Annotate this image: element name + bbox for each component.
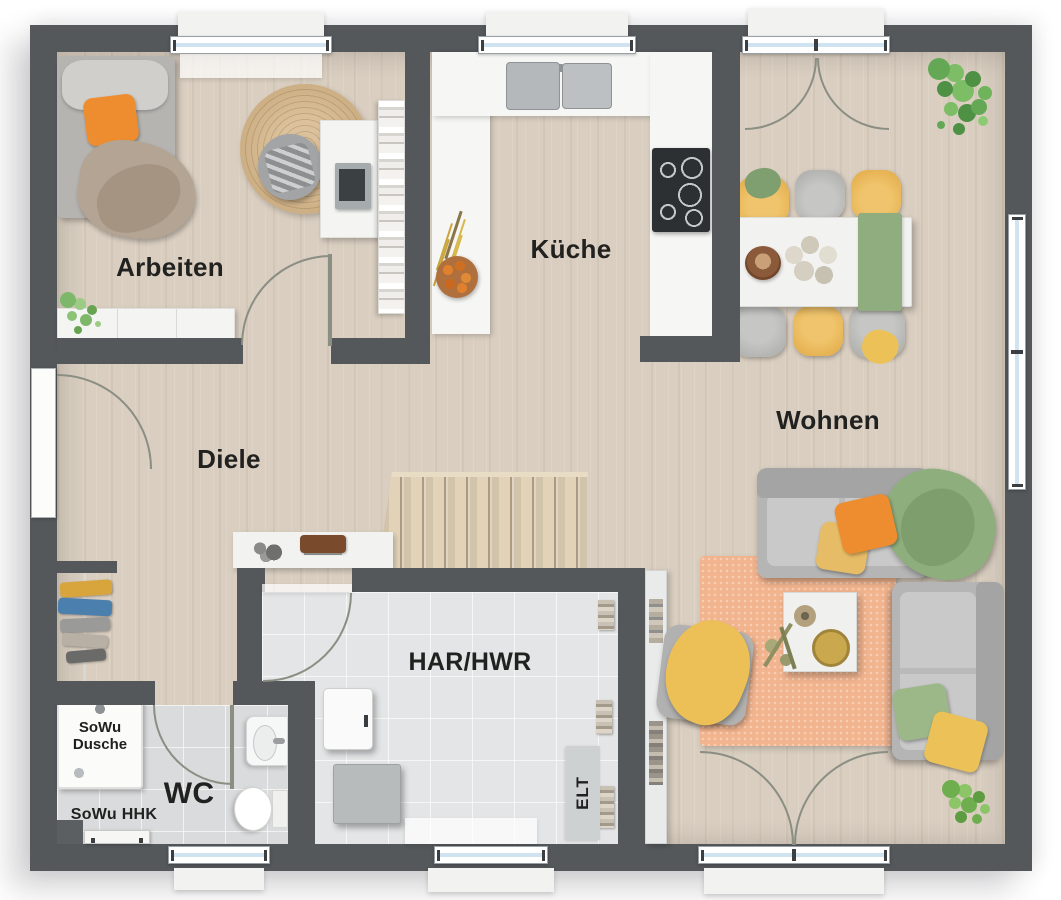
- washbasin: [246, 716, 288, 766]
- washing-machine: [333, 764, 401, 824]
- floor-plan: ELT SoWu Dusche: [0, 0, 1061, 900]
- fruit-bowl: [436, 256, 478, 298]
- window-arbeiten: [170, 36, 332, 54]
- wall-har-right: [618, 568, 645, 844]
- window-board: [180, 54, 322, 78]
- wall-arbeiten-kueche: [405, 52, 430, 350]
- window-sill: [178, 12, 324, 36]
- laptop: [335, 163, 371, 209]
- bookshelf: [378, 100, 405, 314]
- window-wohnen-right: [1008, 214, 1026, 490]
- shelf-books: [596, 700, 612, 734]
- ventilation-unit: [323, 688, 373, 750]
- plant-dining: [928, 58, 950, 80]
- shower-label-line1: SoWu: [79, 719, 121, 736]
- room-label-diele: Diele: [154, 444, 304, 475]
- window-sill: [486, 12, 628, 36]
- window-wc: [168, 846, 270, 864]
- french-door-living: [698, 846, 890, 864]
- wall-wc-top-left: [57, 681, 155, 705]
- kitchen-sink: [506, 60, 614, 112]
- console-decor-sled: [300, 535, 346, 553]
- room-label-wohnen: Wohnen: [753, 405, 903, 436]
- cooktop: [652, 148, 710, 232]
- wardrobe-item-gray: [60, 617, 111, 634]
- dried-plant: [752, 616, 808, 680]
- room-label-arbeiten: Arbeiten: [95, 252, 245, 283]
- console-decor: [248, 538, 288, 564]
- door-sill: [748, 8, 884, 36]
- centerpiece-bowl: [745, 246, 781, 280]
- shelf-books: [598, 786, 614, 828]
- shower-label-line2: Dusche: [73, 736, 127, 753]
- electrical-panel-label: ELT: [573, 776, 593, 810]
- window-sill: [174, 868, 264, 890]
- staircase: [378, 472, 588, 568]
- window-board: [405, 818, 537, 844]
- dining-chair: [793, 306, 843, 356]
- wall-har-top-right: [352, 568, 645, 592]
- dining-chair: [795, 170, 845, 220]
- table-runner: [858, 213, 902, 311]
- french-door-dining: [742, 36, 890, 54]
- wall-kueche-stub: [640, 336, 712, 362]
- toilet: [234, 786, 288, 832]
- orange-pillow: [82, 93, 139, 147]
- room-label-har-hwr: HAR/HWR: [385, 648, 555, 677]
- wall-arbeiten-bottom-right: [331, 338, 430, 364]
- room-label-kueche: Küche: [496, 234, 646, 265]
- shower: SoWu Dusche: [57, 697, 143, 789]
- wall-wc-har: [288, 681, 315, 844]
- toilet-bowl: [234, 787, 272, 831]
- window-har: [434, 846, 548, 864]
- window-sill: [428, 868, 554, 892]
- towel-radiator: [84, 830, 150, 844]
- wall-kueche-wohnen: [712, 52, 740, 362]
- window-kueche: [478, 36, 636, 54]
- wall-arbeiten-bottom-left: [57, 338, 243, 364]
- toilet-tank: [272, 790, 288, 828]
- centerpiece-flowers: [780, 233, 846, 293]
- door-threshold-har: [262, 584, 352, 592]
- plant-living: [942, 780, 960, 798]
- wardrobe-item-blue: [58, 598, 113, 617]
- door-sill: [704, 868, 884, 894]
- electrical-panel: ELT: [566, 746, 600, 840]
- entrance-door: [31, 368, 56, 518]
- shelf-books: [598, 600, 614, 630]
- wall-niche-stub: [57, 561, 117, 573]
- plant-arbeiten: [60, 292, 76, 308]
- heater-label: SoWu HHK: [62, 806, 166, 824]
